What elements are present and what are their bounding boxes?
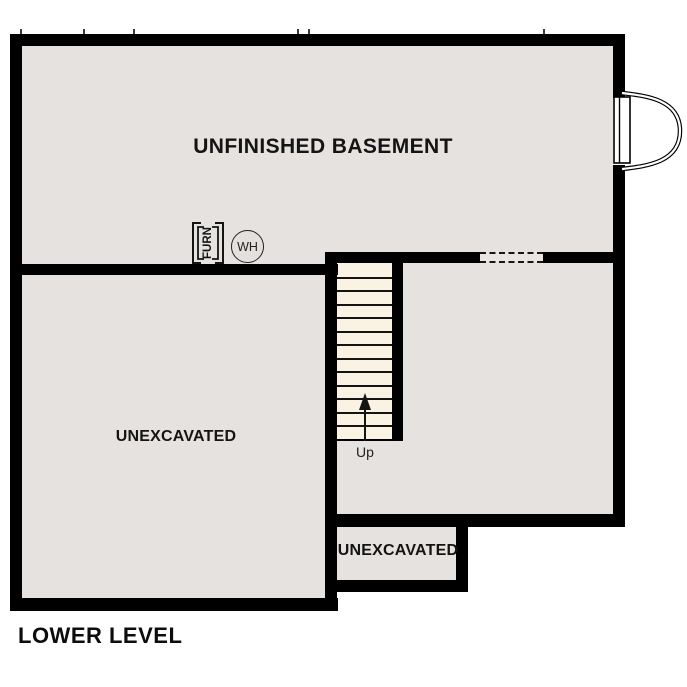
tread-line bbox=[337, 304, 392, 306]
dimension-tick bbox=[20, 29, 22, 34]
water-heater-symbol: WH bbox=[231, 230, 264, 263]
wall-top bbox=[10, 34, 625, 46]
room-label-basement: UNFINISHED BASEMENT bbox=[193, 135, 453, 159]
furnace-label: FURN bbox=[202, 227, 214, 259]
tread-line bbox=[337, 331, 392, 333]
wall-stairwell-right bbox=[392, 263, 403, 441]
door-leaf bbox=[614, 97, 630, 163]
dimension-tick bbox=[83, 29, 85, 34]
basement-entry-door bbox=[596, 84, 687, 184]
wall-right-lower bbox=[613, 165, 625, 527]
right-room-floor bbox=[403, 263, 613, 441]
wall-stairwell-left bbox=[325, 252, 337, 611]
stair-landing-floor bbox=[337, 441, 613, 514]
wall-right-room-bottom bbox=[325, 514, 625, 527]
stairs-up-label: Up bbox=[356, 444, 374, 460]
dimension-tick bbox=[543, 29, 545, 34]
furnace-bracket-right-outer bbox=[215, 223, 223, 263]
wall-basement-bottom-left-segment bbox=[325, 252, 480, 263]
wall-unexcavated-left-top bbox=[10, 264, 338, 275]
tread-line bbox=[337, 277, 392, 279]
water-heater-label: WH bbox=[237, 240, 258, 254]
wall-opening-dashed bbox=[480, 252, 543, 263]
wall-unexcavated-left-bottom bbox=[10, 598, 338, 611]
basement-floor-left-extension bbox=[22, 252, 325, 264]
furnace-bracket-left-outer bbox=[193, 223, 201, 263]
furnace-symbol: FURN bbox=[190, 221, 226, 265]
dimension-tick bbox=[133, 29, 135, 34]
room-label-unexcavated-left: UNEXCAVATED bbox=[116, 428, 236, 446]
tread-line bbox=[337, 290, 392, 292]
tread-line bbox=[337, 358, 392, 360]
tread-line bbox=[337, 371, 392, 373]
tread-line bbox=[337, 317, 392, 319]
tread-line bbox=[337, 385, 392, 387]
wall-unexcavated-bottom-bottom bbox=[325, 580, 468, 592]
room-label-unexcavated-bottom: UNEXCAVATED bbox=[338, 542, 458, 560]
dimension-tick bbox=[297, 29, 299, 34]
tread-line bbox=[337, 344, 392, 346]
dimension-tick bbox=[308, 29, 310, 34]
wall-left bbox=[10, 34, 22, 611]
up-arrow-head bbox=[359, 393, 371, 410]
floor-plan: FURN WH UNFINISHED BASEMENT UNEXCAVATED … bbox=[0, 0, 687, 687]
wall-basement-bottom-right-segment bbox=[543, 252, 613, 263]
plan-title: LOWER LEVEL bbox=[18, 623, 182, 649]
